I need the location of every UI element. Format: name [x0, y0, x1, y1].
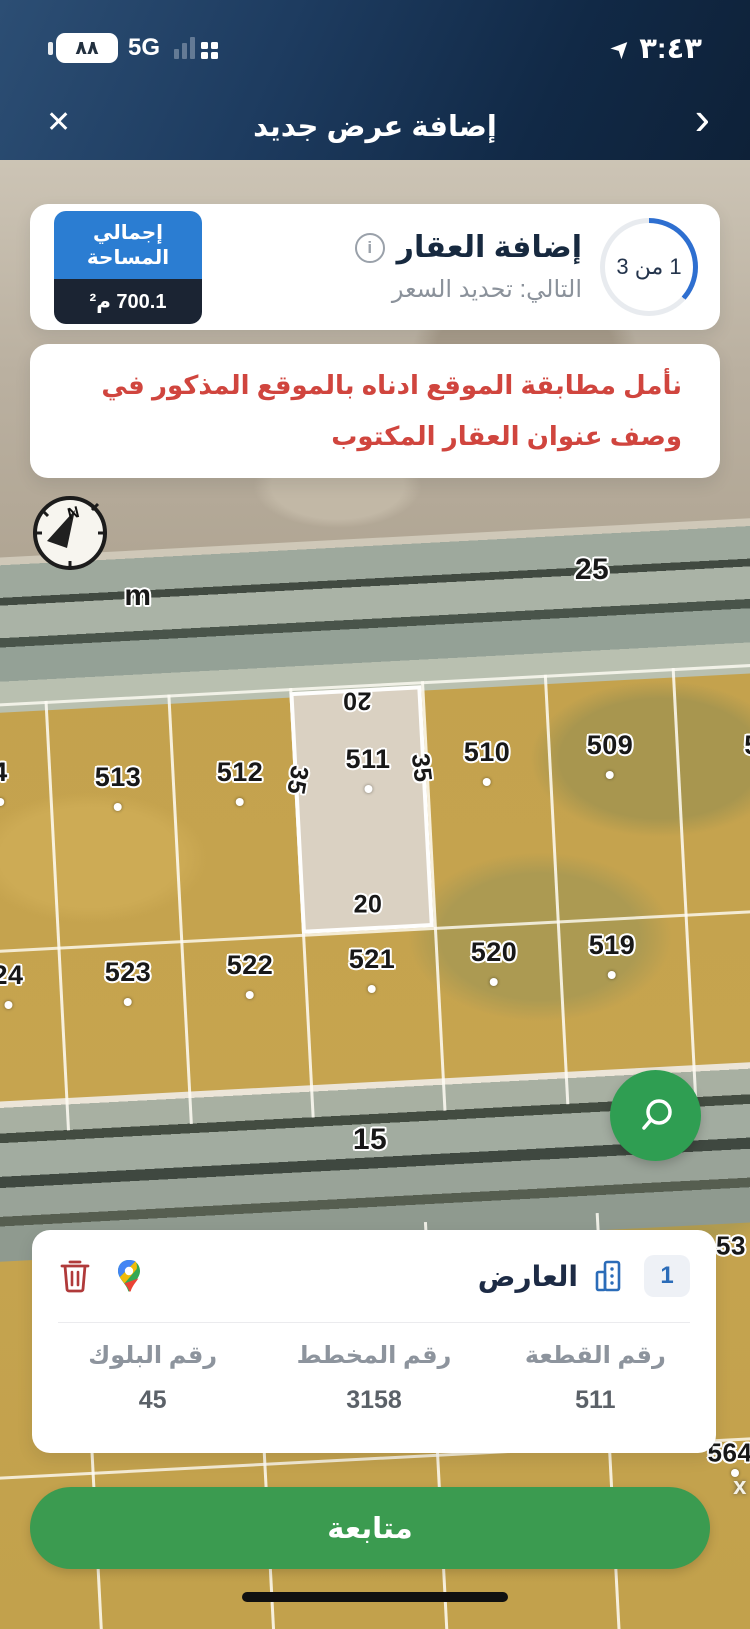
location-arrow-icon: ➤	[604, 31, 639, 66]
plot-label-24: 24	[0, 960, 24, 1009]
notice-text: نأمل مطابقة الموقع ادناه بالموقع المذكور…	[68, 360, 682, 461]
edge-label-53: 53	[716, 1231, 746, 1262]
home-indicator	[242, 1592, 508, 1602]
field-label: رقم المخطط	[263, 1341, 484, 1370]
road-width-label-25: 25	[575, 553, 609, 587]
magnifier-icon	[635, 1095, 677, 1137]
continue-button[interactable]: متابعة	[30, 1487, 710, 1569]
map-search-button[interactable]	[610, 1070, 701, 1161]
time-text: ٣:٤٣	[639, 31, 702, 66]
plot-label-521: 521	[349, 944, 396, 993]
plot-boundary-line	[544, 675, 570, 1105]
plot-label-519: 519	[589, 930, 636, 979]
status-bar: ٨٨ 5G ➤ ٣:٤٣	[0, 28, 750, 68]
close-button[interactable]: ✕	[40, 104, 77, 141]
field-value: 511	[485, 1386, 706, 1415]
offer-count-badge: 1	[644, 1255, 690, 1297]
back-button[interactable]: ›	[689, 94, 716, 142]
offer-details-card: 1 العارض	[32, 1230, 716, 1453]
field-plot-number: رقم القطعة 511	[485, 1341, 706, 1415]
plot-label-512: 512	[217, 757, 264, 806]
plot-label-509: 509	[587, 730, 634, 779]
field-value: 45	[42, 1386, 263, 1415]
plot-label-522: 522	[227, 950, 274, 999]
info-icon[interactable]: i	[355, 233, 385, 263]
progress-step-text: 1 من 3	[605, 223, 693, 311]
offer-card-header: 1 العارض	[32, 1230, 716, 1322]
network-type: 5G	[128, 34, 160, 62]
page-title: إضافة عرض جديد	[253, 109, 497, 144]
plot-dim-top-20: 20	[343, 686, 372, 715]
field-label: رقم القطعة	[485, 1341, 706, 1370]
plot-boundary-line	[672, 668, 698, 1098]
battery-indicator: ٨٨	[48, 33, 118, 63]
offer-title: العارض	[478, 1260, 578, 1293]
top-bar: ٨٨ 5G ➤ ٣:٤٣ ✕ إضافة عرض جديد ›	[0, 0, 750, 160]
navigation-bar: ✕ إضافة عرض جديد ›	[0, 100, 750, 152]
road-width-label-15: 15	[353, 1123, 387, 1157]
plot-label-520: 520	[471, 937, 518, 986]
trash-icon	[58, 1258, 92, 1294]
field-value: 3158	[263, 1386, 484, 1415]
plot-dim-right-35: 35	[405, 752, 437, 784]
plot-label-508-partial: 5	[744, 730, 750, 761]
signal-strength-icon	[174, 37, 218, 59]
total-area-value: 700.1 م²	[54, 279, 202, 324]
battery-cap	[48, 42, 53, 55]
field-block-number: رقم البلوك 45	[42, 1341, 263, 1415]
compass-icon: N	[30, 493, 110, 573]
step-title: إضافة العقار	[397, 230, 582, 265]
plot-label-510: 510	[464, 737, 511, 786]
clock: ➤ ٣:٤٣	[611, 31, 702, 66]
battery-percent: ٨٨	[56, 33, 118, 63]
total-area-badge: إجمالي المساحة 700.1 م²	[54, 211, 202, 324]
total-area-label: إجمالي المساحة	[54, 211, 202, 279]
edge-label-x: x	[733, 1473, 747, 1501]
google-maps-icon	[110, 1257, 148, 1295]
field-plan-number: رقم المخطط 3158	[263, 1341, 484, 1415]
meter-label: m	[124, 579, 151, 613]
field-label: رقم البلوك	[42, 1341, 263, 1370]
delete-button[interactable]	[58, 1258, 92, 1294]
plot-label-513: 513	[95, 762, 142, 811]
plot-boundary-line	[167, 694, 193, 1124]
offer-fields: رقم القطعة 511 رقم المخطط 3158 رقم البلو…	[32, 1323, 716, 1415]
plot-boundary-line	[45, 701, 71, 1131]
plot-label-4: 4	[0, 757, 8, 806]
next-step-hint: التالي: تحديد السعر	[220, 275, 582, 304]
location-notice-card: نأمل مطابقة الموقع ادناه بالموقع المذكور…	[30, 344, 720, 478]
building-icon	[592, 1257, 630, 1295]
google-maps-button[interactable]	[110, 1257, 148, 1295]
plot-dim-left-35: 35	[280, 763, 314, 796]
stepper-card: 1 من 3 إضافة العقار i التالي: تحديد السع…	[30, 204, 720, 330]
plot-label-511: 511	[345, 744, 390, 793]
plot-label-523: 523	[105, 957, 152, 1006]
progress-ring: 1 من 3	[600, 218, 698, 316]
app-screen: 25 m 15 20 20 35 35 4 513 512 511 510 50…	[0, 0, 750, 1629]
plot-dim-bottom-20: 20	[354, 891, 383, 920]
